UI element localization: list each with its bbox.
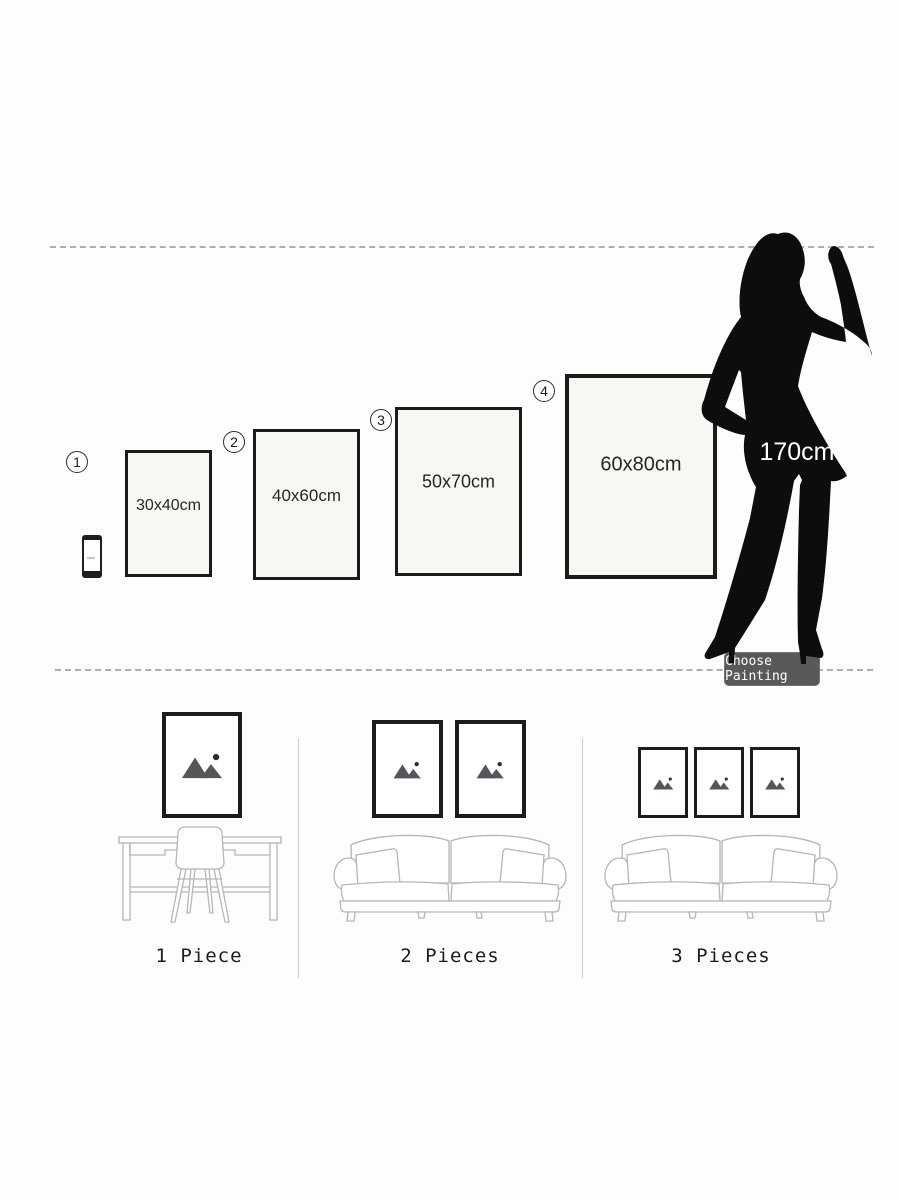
scene-divider-2 xyxy=(582,738,583,978)
image-placeholder-icon xyxy=(475,760,506,779)
step-number-1: 1 xyxy=(66,451,88,473)
step-number-2: 2 xyxy=(223,431,245,453)
step-number-4: 4 xyxy=(533,380,555,402)
image-placeholder-icon xyxy=(708,776,731,790)
scene3-frame-3 xyxy=(750,747,800,818)
desk-and-chair-sketch xyxy=(115,825,285,930)
scene3-frame-1 xyxy=(638,747,688,818)
scene-divider-1 xyxy=(298,738,299,978)
step-number-2-text: 2 xyxy=(230,434,238,450)
step-number-3-text: 3 xyxy=(377,412,385,428)
scene2-label: 2 Pieces xyxy=(330,945,570,967)
step-number-3: 3 xyxy=(370,409,392,431)
sofa-sketch xyxy=(601,823,841,923)
size-frame-30x40: 30x40cm xyxy=(125,450,212,577)
image-placeholder-icon xyxy=(392,760,423,779)
scene3-frame-2 xyxy=(694,747,744,818)
size-label-30x40: 30x40cm xyxy=(128,497,209,515)
height-label: 170cm xyxy=(759,438,834,466)
woman-silhouette: 170cm xyxy=(695,228,877,672)
image-placeholder-icon xyxy=(180,751,225,779)
scene3-label: 3 Pieces xyxy=(601,945,841,967)
image-placeholder-icon xyxy=(764,776,787,790)
scene2-frame-2 xyxy=(455,720,526,818)
sofa-sketch xyxy=(330,823,570,923)
step-number-4-text: 4 xyxy=(540,383,548,399)
size-label-60x80: 60x80cm xyxy=(569,453,713,476)
scene2-frame-1 xyxy=(372,720,443,818)
step-number-1-text: 1 xyxy=(73,454,81,470)
size-label-40x60: 40x60cm xyxy=(256,486,357,506)
size-frame-50x70: 50x70cm xyxy=(395,407,522,576)
image-placeholder-icon xyxy=(652,776,675,790)
scene1-frame xyxy=(162,712,242,818)
smartphone-icon xyxy=(82,535,102,578)
size-guide-infographic: 1 2 3 4 30x40cm 40x60cm 50x70cm 60x80cm … xyxy=(0,0,900,1198)
size-frame-40x60: 40x60cm xyxy=(253,429,360,580)
size-label-50x70: 50x70cm xyxy=(398,471,519,492)
scene1-label: 1 Piece xyxy=(114,945,284,967)
smartphone-screen xyxy=(84,540,100,571)
